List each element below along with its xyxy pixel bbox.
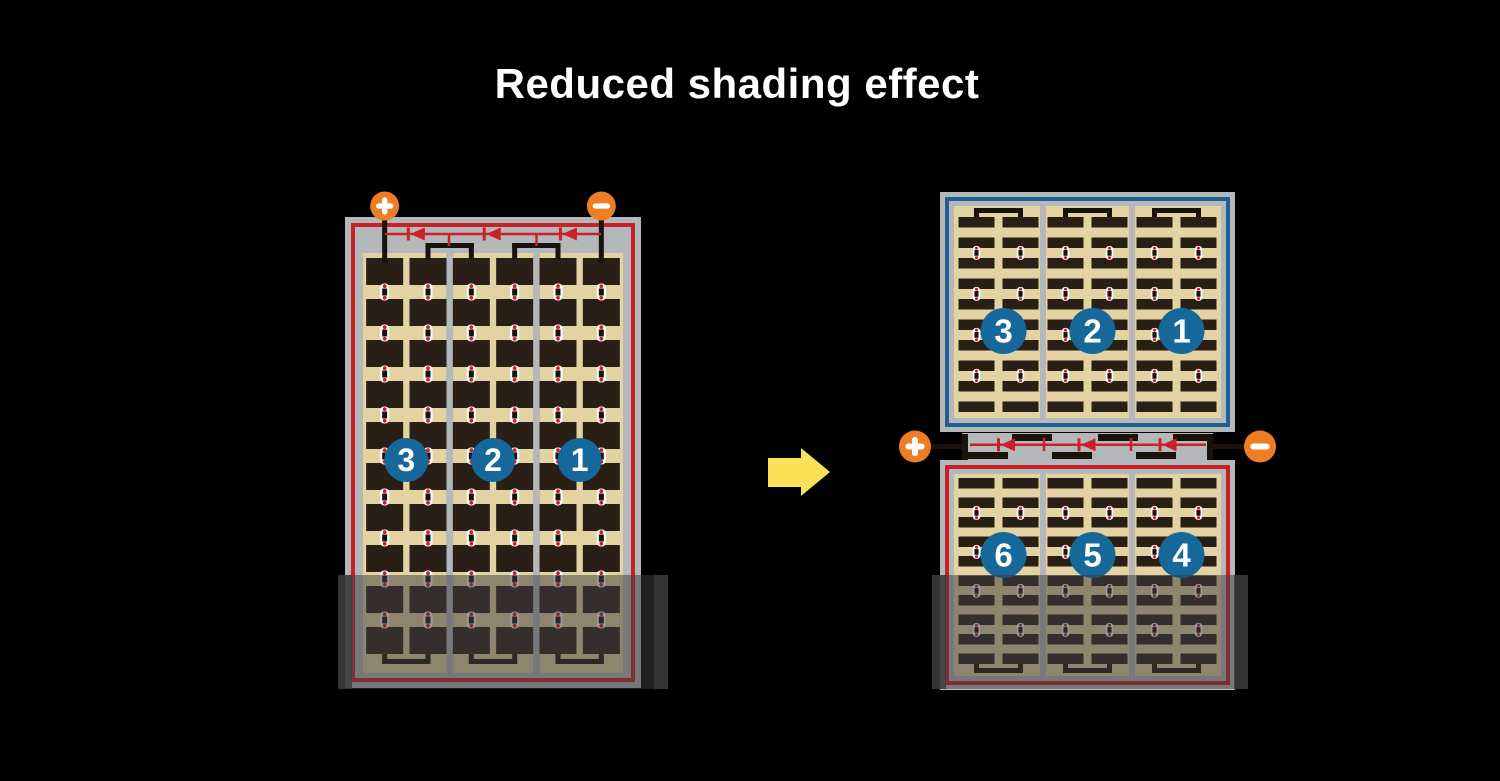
shading-overlay: [932, 575, 1248, 689]
string-badge: 2: [471, 438, 515, 482]
string-badge-label: 1: [1172, 313, 1190, 350]
infographic: Reduced shading effect 321321654: [0, 0, 1500, 781]
string-badge-label: 3: [397, 442, 415, 478]
plus-terminal-icon: [370, 192, 399, 221]
string-badge: 2: [1070, 308, 1116, 354]
string-badge: 5: [1070, 532, 1116, 578]
string-badge-label: 1: [571, 442, 589, 478]
string-badge-label: 6: [994, 537, 1012, 574]
plus-terminal-icon: [899, 431, 931, 463]
right-module-top-half: 321: [940, 192, 1235, 432]
string-badge-label: 5: [1083, 537, 1101, 574]
minus-terminal-icon: [587, 192, 616, 221]
string-badge-label: 3: [994, 313, 1012, 350]
string-badge: 1: [558, 438, 602, 482]
string-badge: 6: [981, 532, 1027, 578]
string-badge: 3: [384, 438, 428, 482]
string-badge-label: 4: [1172, 537, 1191, 574]
minus-terminal-icon: [1244, 431, 1276, 463]
string-badge-label: 2: [1083, 313, 1101, 350]
solar-module-diagram: 321321654: [0, 0, 1500, 781]
bypass-diode-bus: [929, 433, 1246, 461]
string-badge-label: 2: [484, 442, 502, 478]
string-badge: 3: [981, 308, 1027, 354]
left-module: 321: [338, 192, 668, 690]
string-badge: 4: [1159, 532, 1205, 578]
string-badge: 1: [1159, 308, 1205, 354]
shading-overlay: [338, 575, 668, 689]
right-module: 321654: [899, 192, 1276, 690]
flow-arrow-icon: [768, 448, 830, 496]
